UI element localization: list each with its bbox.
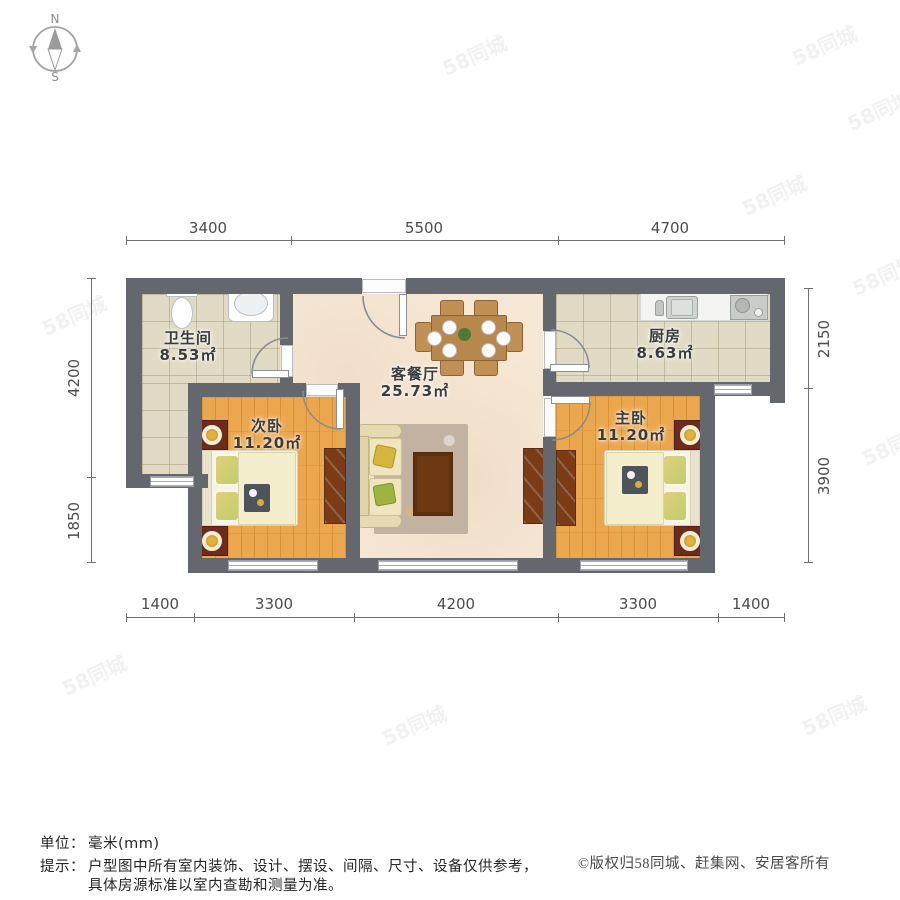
breakfast-tray <box>622 466 648 494</box>
bed-pillow <box>662 490 688 522</box>
wall-segment <box>188 383 306 397</box>
dimension-tick <box>194 613 195 622</box>
dimension-tick <box>87 562 96 563</box>
floor-plan-canvas: 58同城 58同城 58同城 58同城 58同城 58同城 58同城 58同城 … <box>0 0 900 900</box>
bathroom-floor-lower <box>142 383 188 474</box>
kitchen-sink-basin <box>671 299 693 316</box>
window <box>580 560 688 571</box>
lamp-icon <box>202 531 222 551</box>
dimension-tick <box>784 613 785 622</box>
stove-burner-large <box>735 298 750 313</box>
watermark: 58同城 <box>847 247 900 301</box>
bed-pillow <box>662 454 688 486</box>
dimension-line-left <box>91 278 92 563</box>
room-label-living: 客餐厅 25.73㎡ <box>355 366 475 400</box>
room-area: 8.63㎡ <box>636 344 693 362</box>
dining-chair <box>474 359 498 376</box>
dimension-tick <box>126 236 127 245</box>
watermark: 58同城 <box>437 27 511 81</box>
tip-label: 提示： <box>40 855 85 876</box>
window <box>150 476 194 487</box>
dimension-label: 4700 <box>620 219 720 237</box>
door-threshold-entry <box>362 279 406 293</box>
dimension-tick <box>126 613 127 622</box>
wall-segment <box>126 278 142 488</box>
dimension-label: 2150 <box>815 309 833 369</box>
room-area: 11.20㎡ <box>233 434 301 452</box>
plate <box>481 343 496 358</box>
room-label-master-bedroom: 主卧 11.20㎡ <box>571 410 691 444</box>
dimension-label: 4200 <box>65 348 83 408</box>
window <box>228 560 318 571</box>
door-leaf-master <box>551 396 590 404</box>
room-name: 卫生间 <box>164 329 212 347</box>
wall-segment <box>543 294 556 331</box>
watermark: 58同城 <box>842 82 900 136</box>
tv-stand-secondary <box>324 448 346 524</box>
plant-icon <box>458 328 471 341</box>
dimension-tick <box>558 613 559 622</box>
copyright-text: ©版权归58同城、赶集网、安居客所有 <box>578 852 830 873</box>
stove-burner-small <box>754 308 763 317</box>
room-name: 厨房 <box>649 327 681 345</box>
dimension-line-top <box>126 240 785 241</box>
dimension-label: 3300 <box>229 595 319 613</box>
breakfast-tray <box>244 484 270 512</box>
door-leaf-kitchen <box>550 364 589 372</box>
tip-line-2: 具体房源标准以室内查勘和测量为准。 <box>88 874 343 895</box>
unit-value: 毫米(mm) <box>88 832 160 853</box>
bed-pillow <box>214 490 240 522</box>
dimension-label: 4200 <box>411 595 501 613</box>
plate <box>481 320 496 335</box>
toilet-icon <box>171 297 193 329</box>
dimension-line-bottom <box>126 617 785 618</box>
room-area: 11.20㎡ <box>597 426 665 444</box>
window <box>714 384 752 395</box>
cup <box>249 489 257 497</box>
window <box>378 560 518 571</box>
lamp-icon <box>680 531 700 551</box>
room-name: 次卧 <box>251 417 283 435</box>
compass-north-label: N <box>47 12 63 26</box>
room-name: 客餐厅 <box>391 365 439 383</box>
sofa-armrest <box>356 514 402 528</box>
watermark: 58同城 <box>857 417 900 471</box>
dimension-label: 1400 <box>706 595 796 613</box>
dimension-label: 3400 <box>158 219 258 237</box>
watermark: 58同城 <box>57 647 131 701</box>
dimension-tick <box>87 477 96 478</box>
dimension-tick <box>804 388 813 389</box>
room-label-secondary-bedroom: 次卧 11.20㎡ <box>207 418 327 452</box>
tip-line-1: 户型图中所有室内装饰、设计、摆设、间隔、尺寸、设备仅供参考， <box>88 855 538 876</box>
dimension-tick <box>804 562 813 563</box>
door-leaf-entry <box>399 294 407 336</box>
dimension-tick <box>804 288 813 289</box>
wall-segment <box>700 383 715 573</box>
watermark: 58同城 <box>737 167 811 221</box>
bed-headboard <box>202 450 212 526</box>
room-area: 25.73㎡ <box>381 382 449 400</box>
plate <box>442 320 457 335</box>
dimension-label: 1850 <box>65 491 83 551</box>
dimension-tick <box>784 236 785 245</box>
watermark: 58同城 <box>377 697 451 751</box>
room-area: 8.53㎡ <box>159 346 216 364</box>
door-leaf-secondary <box>336 389 344 429</box>
dimension-tick <box>87 278 96 279</box>
plate <box>442 343 457 358</box>
dimension-tick <box>354 613 355 622</box>
wall-segment <box>280 290 293 345</box>
cup <box>627 471 635 479</box>
wall-segment <box>770 278 785 403</box>
dish-soap-bottle <box>655 300 664 316</box>
plate <box>496 331 511 346</box>
room-label-kitchen: 厨房 8.63㎡ <box>605 328 725 362</box>
bed-pillow <box>214 454 240 486</box>
dimension-tick <box>558 236 559 245</box>
compass-south-label: S <box>47 70 63 84</box>
throw-pillow-yellow <box>372 444 397 469</box>
tv-stand-master <box>556 450 576 526</box>
wall-segment <box>543 437 556 558</box>
dimension-label: 1400 <box>115 595 205 613</box>
dimension-label: 3300 <box>593 595 683 613</box>
room-name: 主卧 <box>615 409 647 427</box>
plate <box>427 331 442 346</box>
watermark: 58同城 <box>787 17 861 71</box>
coffee-table <box>413 452 453 516</box>
bed-headboard <box>690 450 700 526</box>
dimension-tick <box>718 613 719 622</box>
cup <box>257 499 264 506</box>
door-leaf-bathroom <box>252 370 289 378</box>
watermark: 58同城 <box>797 687 871 741</box>
wall-segment <box>346 383 360 573</box>
sink-basin <box>234 291 268 316</box>
wall-segment <box>406 278 785 294</box>
watermark: 58同城 <box>37 287 111 341</box>
door-threshold-secondary <box>306 384 338 396</box>
unit-label: 单位： <box>40 832 85 853</box>
dimension-label: 5500 <box>374 219 474 237</box>
dimension-tick <box>291 236 292 245</box>
dimension-label: 3900 <box>815 446 833 506</box>
cup <box>635 481 642 488</box>
dimension-line-right <box>808 288 809 562</box>
throw-pillow-green <box>372 482 396 506</box>
room-label-bathroom: 卫生间 8.53㎡ <box>128 330 248 364</box>
wall-segment <box>126 278 362 294</box>
